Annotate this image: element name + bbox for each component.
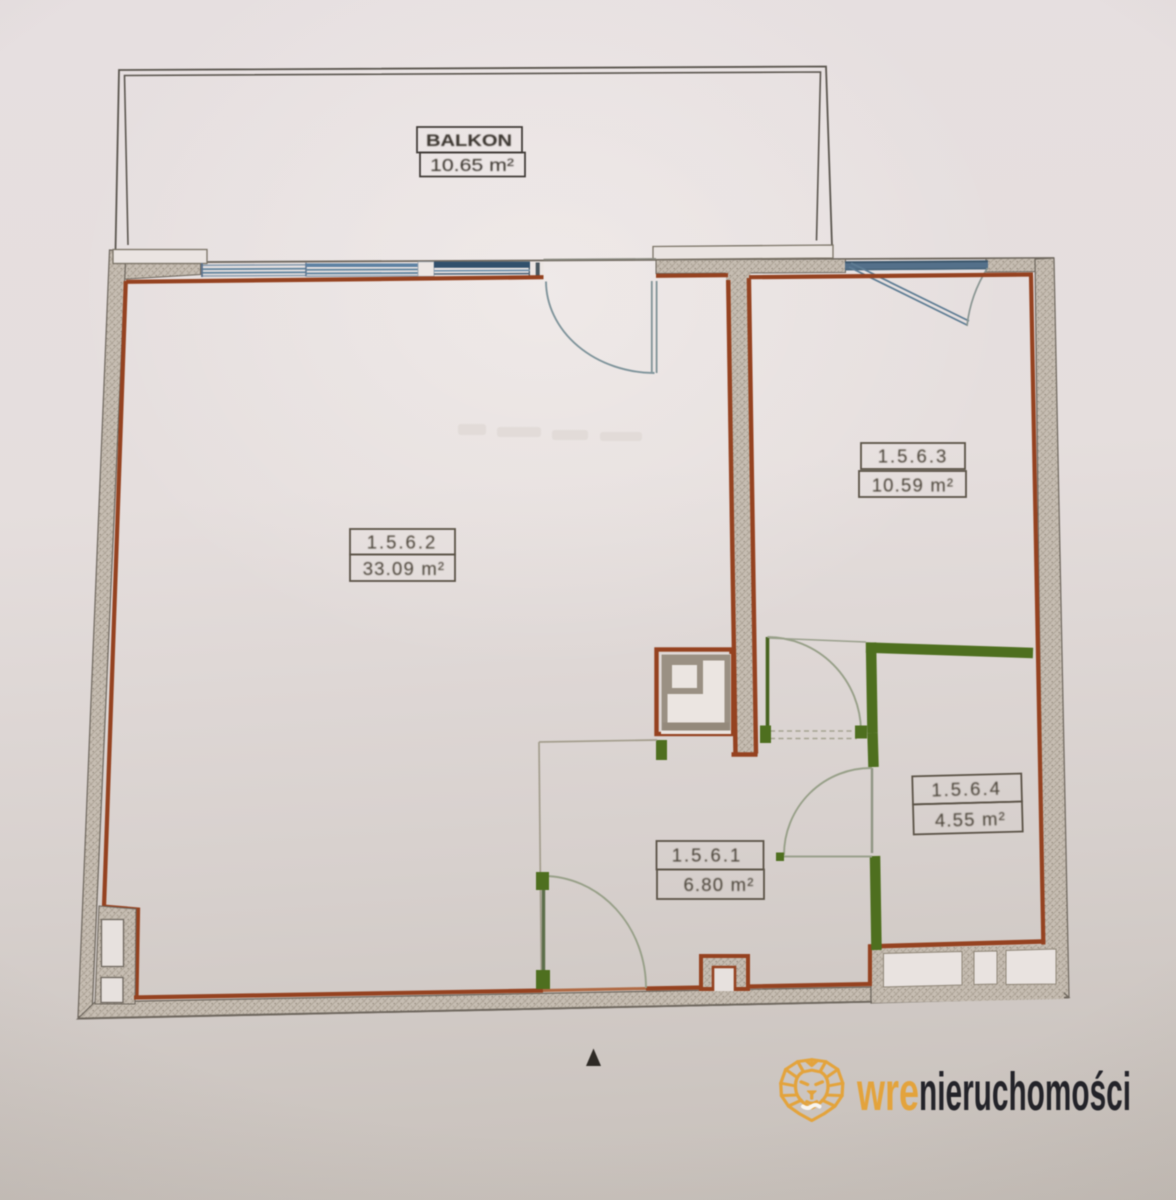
svg-text:nieruchomości: nieruchomości — [919, 1062, 1131, 1122]
svg-text:10.65 m²: 10.65 m² — [430, 155, 514, 175]
svg-text:4.55 m²: 4.55 m² — [935, 808, 1007, 831]
svg-text:BALKON: BALKON — [426, 131, 512, 150]
svg-text:1.5.6.1: 1.5.6.1 — [672, 845, 743, 866]
svg-text:1.5.6.2: 1.5.6.2 — [367, 532, 438, 553]
svg-text:1.5.6.4: 1.5.6.4 — [931, 778, 1002, 801]
svg-text:6.80 m²: 6.80 m² — [683, 874, 754, 895]
svg-text:33.09 m²: 33.09 m² — [363, 558, 446, 579]
svg-text:1.5.6.3: 1.5.6.3 — [878, 446, 949, 467]
svg-text:wre: wre — [856, 1062, 919, 1122]
svg-text:10.59 m²: 10.59 m² — [872, 475, 955, 496]
